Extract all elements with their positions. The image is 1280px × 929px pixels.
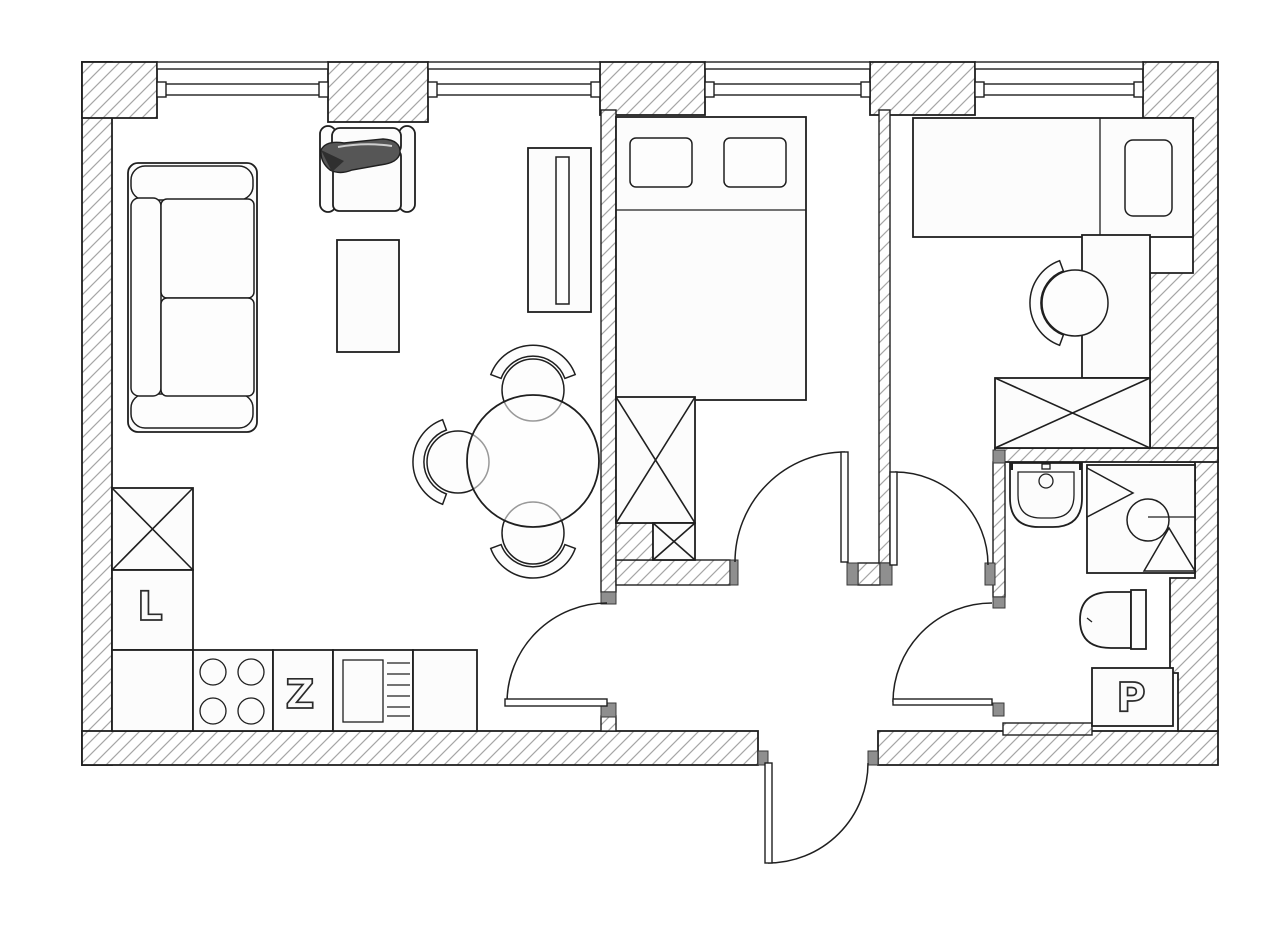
label-dishwasher: Z: [285, 672, 314, 718]
wall-step-bottom: [1003, 723, 1092, 735]
jamb: [993, 450, 1005, 463]
wall-stub-between-doors: [858, 563, 880, 585]
armchair: [320, 126, 415, 212]
kitchen-counter: [413, 650, 477, 731]
floor-plan-drawing: L Z P: [0, 0, 1280, 929]
jamb: [601, 592, 616, 604]
floor-plan-canvas: L Z P: [0, 0, 1280, 929]
coffee-table: [337, 240, 399, 352]
wall-stub-bedroom: [616, 523, 653, 560]
label-refrigerator: L: [137, 584, 163, 630]
double-bed: [616, 117, 806, 400]
shower: [1087, 465, 1195, 573]
outer-wall-left: [82, 62, 112, 765]
toilet: [1080, 590, 1146, 649]
jamb: [868, 751, 878, 765]
wall-living-bedroom: [601, 110, 616, 592]
jamb: [880, 563, 892, 585]
pillow: [1125, 140, 1172, 216]
pier-top-left-corner: [82, 62, 157, 118]
wardrobe: [616, 397, 695, 523]
jamb: [985, 563, 995, 585]
wall-stub-living-door: [601, 716, 616, 731]
dining-table: [467, 395, 599, 527]
label-washing-machine: P: [1116, 675, 1145, 721]
outer-wall-bottom-right: [878, 731, 1218, 765]
jamb: [993, 703, 1004, 716]
refrigerator: [112, 488, 193, 570]
pillow: [724, 138, 786, 187]
kitchen-sink: [333, 650, 413, 731]
outer-wall-bottom-left: [82, 731, 758, 765]
single-bed: [913, 118, 1193, 237]
jamb: [730, 560, 738, 585]
wardrobe: [995, 378, 1150, 448]
sofa: [128, 163, 257, 432]
jamb: [993, 597, 1005, 608]
stove: [193, 650, 273, 731]
pier-top-living-bedroom: [600, 62, 705, 115]
pillow: [630, 138, 692, 187]
pier-top-bedroom-right: [870, 62, 975, 115]
shelf-unit: [528, 148, 591, 312]
pier-top-living: [328, 62, 428, 122]
bathroom-top-wall: [995, 448, 1218, 462]
jamb: [847, 563, 858, 585]
kitchen-corner-counter: [112, 650, 193, 731]
wall-bedroom-rightroom: [879, 110, 890, 563]
washbasin: [1010, 463, 1082, 527]
small-cabinet: [653, 523, 695, 560]
wall-bedroom-hall: [616, 560, 730, 585]
